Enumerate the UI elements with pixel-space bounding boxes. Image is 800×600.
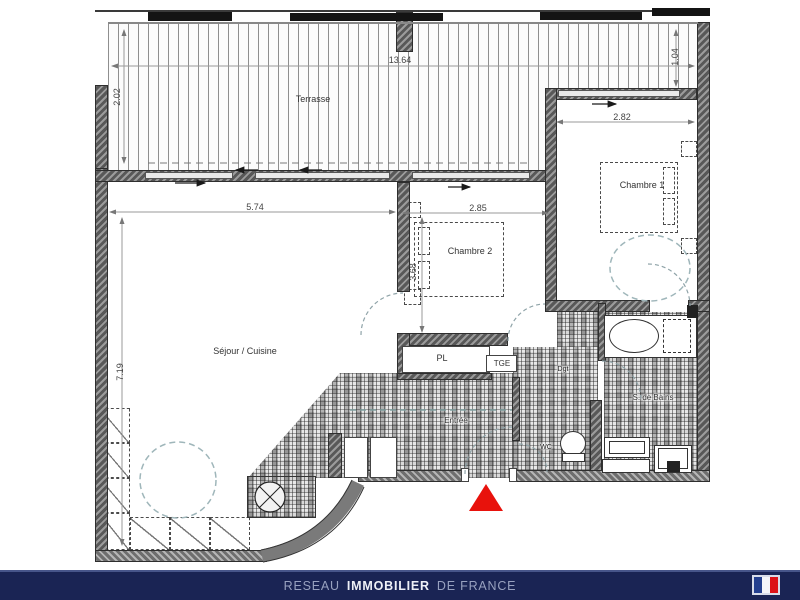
dim-chambre2-width: 2.85 xyxy=(458,203,498,213)
awning-bar xyxy=(652,8,710,16)
dim-right-depth: 1.04 xyxy=(670,42,680,72)
window-chambre2 xyxy=(412,172,530,179)
brand-suffix: DE FRANCE xyxy=(437,579,516,593)
pillow xyxy=(418,227,430,255)
room-label-tge: TGE xyxy=(488,359,516,368)
wall-hall-wc xyxy=(512,377,520,441)
dim-terrasse-depth: 2.02 xyxy=(112,82,122,112)
room-label-chambre1: Chambre 1 xyxy=(612,180,672,190)
wall-right xyxy=(697,22,710,482)
wall-left xyxy=(95,168,108,562)
degagement-floor xyxy=(557,312,598,347)
dim-sejour-width: 5.74 xyxy=(235,202,275,212)
rug-circle xyxy=(610,235,690,301)
kitchen-cabinet xyxy=(130,517,170,550)
awning-bar xyxy=(540,12,642,20)
vanity-basin xyxy=(609,441,645,454)
entry-niche xyxy=(370,437,397,478)
dim-chambre1-width: 2.82 xyxy=(602,112,642,122)
door-arc-chambre2-sejour xyxy=(361,293,403,335)
nightstand xyxy=(681,238,697,254)
shower-drain xyxy=(667,461,680,472)
room-label-bains: S. de Bains xyxy=(622,393,684,402)
room-label-wc: WC xyxy=(536,444,556,452)
kitchen-cabinet xyxy=(210,517,250,550)
awning-bar xyxy=(290,13,443,21)
window-sejour xyxy=(145,172,233,179)
room-label-pl: PL xyxy=(430,353,454,363)
floor-plan: Terrasse Séjour / Cuisine Chambre 2 Cham… xyxy=(0,0,800,600)
door-post xyxy=(461,468,469,482)
door-arc-chambre2-hall xyxy=(508,304,545,341)
terrace-edge-line xyxy=(108,22,698,24)
brand-name: IMMOBILIER xyxy=(347,579,430,593)
kitchen-cabinet xyxy=(170,517,210,550)
brand-prefix: RESEAU xyxy=(284,579,340,593)
wall-pl-bottom xyxy=(397,373,492,380)
room-label-entree: Entrée xyxy=(432,416,480,425)
pillow xyxy=(663,198,675,225)
utility-box xyxy=(687,305,698,318)
wall-bottom-left xyxy=(95,550,267,562)
france-flag-icon xyxy=(752,575,780,595)
footer-bar: RESEAU IMMOBILIER DE FRANCE xyxy=(0,570,800,600)
entrance-marker-icon xyxy=(469,484,503,511)
wall-chambre2-bottom xyxy=(397,333,508,346)
table-circle xyxy=(140,442,216,518)
wall-chambre1-left xyxy=(545,88,557,312)
bath-mat xyxy=(602,459,650,473)
wall-kitchen-alcove xyxy=(328,433,342,478)
wall-left-terrace xyxy=(95,85,108,170)
dim-total-width: 13.64 xyxy=(378,55,422,65)
window-sejour xyxy=(255,172,390,179)
pillow xyxy=(418,261,430,289)
door-post xyxy=(509,468,517,482)
room-label-dgt: Dgt xyxy=(550,366,576,374)
brand-text: RESEAU IMMOBILIER DE FRANCE xyxy=(0,572,800,600)
nightstand xyxy=(681,141,697,157)
wall-wc-bains xyxy=(590,400,602,478)
toilet-tank xyxy=(562,453,585,462)
dim-sejour-height: 7.19 xyxy=(115,357,125,387)
window-chambre1 xyxy=(558,90,680,97)
room-label-terrasse: Terrasse xyxy=(283,94,343,104)
bathtub-basin xyxy=(609,319,659,353)
entry-niche xyxy=(344,437,368,478)
kitchen-sink-unit xyxy=(248,477,315,517)
room-label-sejour: Séjour / Cuisine xyxy=(200,346,290,356)
door-arc-chambre1 xyxy=(648,264,690,306)
dim-chambre2-height: 3.68 xyxy=(408,257,418,287)
awning-bar xyxy=(148,12,232,21)
room-label-chambre2: Chambre 2 xyxy=(440,246,500,256)
bathtub-fixture xyxy=(663,319,691,353)
